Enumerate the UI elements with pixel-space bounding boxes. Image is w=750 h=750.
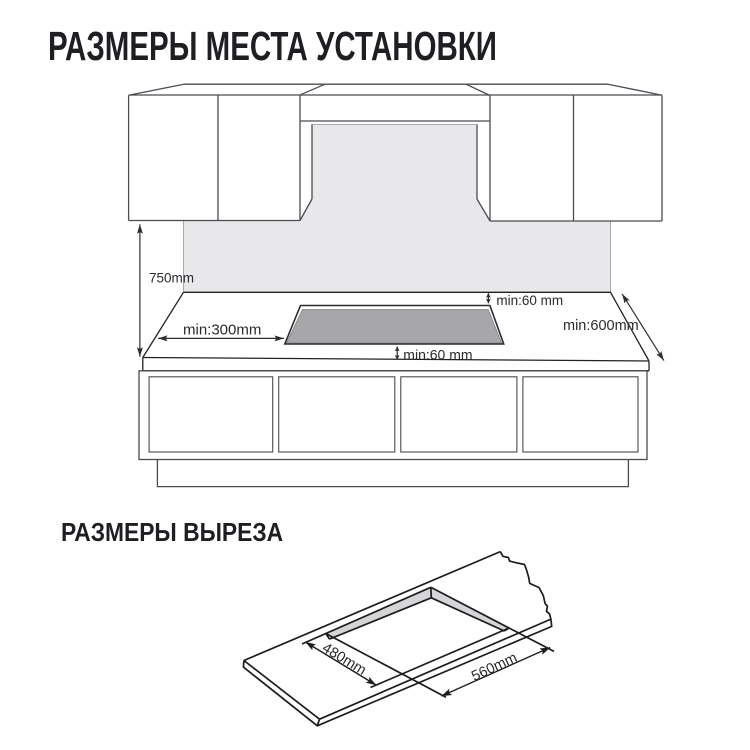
- svg-text:480mm: 480mm: [319, 640, 369, 679]
- svg-text:РАЗМЕРЫ МЕСТА УСТАНОВКИ: РАЗМЕРЫ МЕСТА УСТАНОВКИ: [48, 23, 497, 69]
- svg-text:750mm: 750mm: [149, 271, 194, 286]
- svg-text:560mm: 560mm: [469, 650, 520, 685]
- svg-text:min:60 mm: min:60 mm: [496, 293, 563, 308]
- svg-text:min:300mm: min:300mm: [183, 322, 261, 339]
- svg-text:min:600mm: min:600mm: [563, 318, 639, 334]
- svg-text:min:60 mm: min:60 mm: [403, 346, 472, 362]
- svg-text:РАЗМЕРЫ ВЫРЕЗА: РАЗМЕРЫ ВЫРЕЗА: [61, 519, 283, 548]
